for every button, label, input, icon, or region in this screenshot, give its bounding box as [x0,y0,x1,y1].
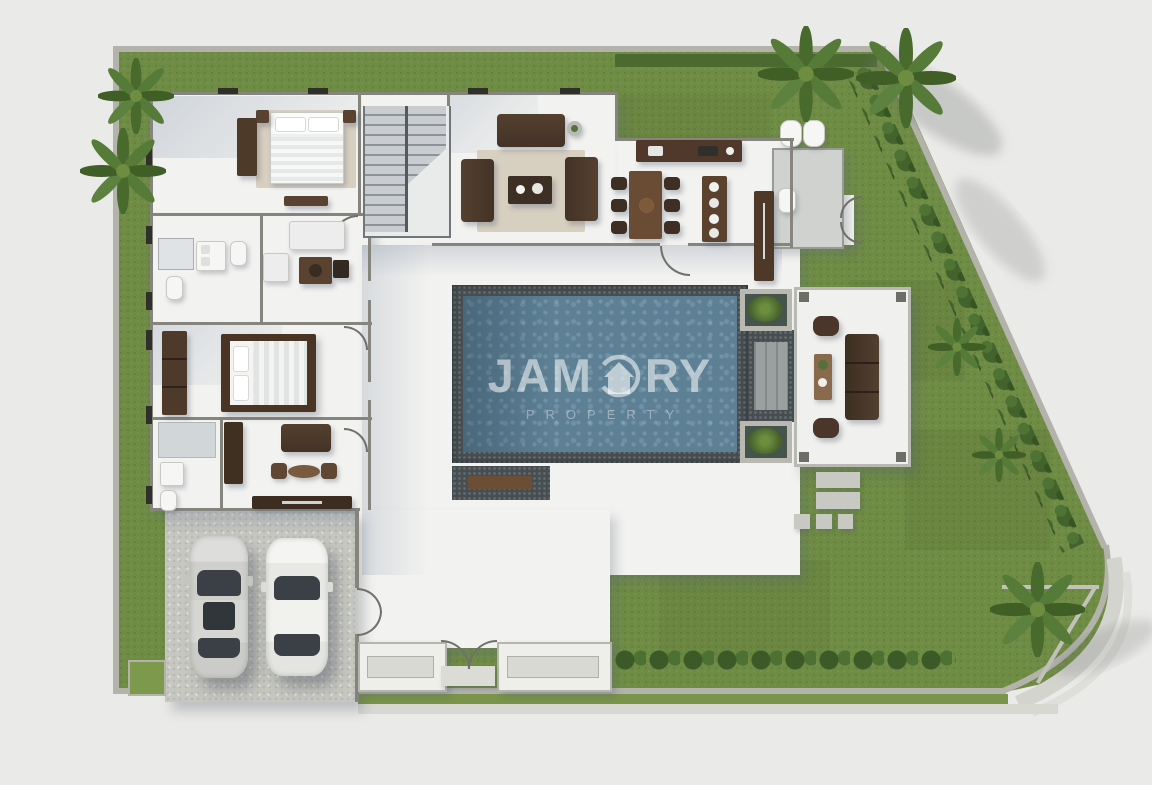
stepping-stone [816,492,860,509]
desk [299,257,332,284]
side-table [567,121,582,136]
sink [648,146,663,156]
house-layer [0,0,1152,785]
wardrobe [237,118,257,176]
study-sofa [289,221,345,250]
island-buffet [702,176,727,242]
wall [152,417,372,420]
car-mirror [247,576,253,586]
tv-console [252,496,352,509]
dish [818,378,827,387]
car-silver [190,536,248,678]
pavilion-post [896,292,906,302]
basin [201,245,210,254]
cushion-seam [845,391,879,393]
car-windshield [197,570,241,596]
outdoor-bench [468,476,532,489]
dining-chair [611,221,627,234]
counter-handle [763,203,765,259]
wall [790,138,793,248]
sofa-top [497,114,565,147]
plant [571,125,578,132]
wall [152,322,372,325]
planter-plant [748,296,782,322]
pool-steps [748,330,794,422]
toilet [166,276,183,300]
stepping-stone [794,514,810,529]
stair-railing [405,106,408,232]
window [146,148,152,168]
stepping-stone [838,514,853,529]
window [308,88,328,94]
garden-hedge-row [612,646,956,674]
cushion-seam [845,362,879,364]
cooktop [698,146,718,156]
wardrobe-divider [162,358,187,360]
toilet [778,188,796,213]
oval-table [288,465,320,478]
wardrobe-divider [162,386,187,388]
window [218,88,238,94]
pillow [308,117,339,132]
kitchen-counter [636,140,742,162]
entry-step [441,666,495,686]
carport-fence [355,510,359,588]
duvet [254,341,307,405]
villa-floorplan-screenshot: JAM RY PROPERTY [0,0,1152,785]
dining-chair [664,177,680,190]
bench-pad [452,466,550,500]
planter-plant [748,428,782,454]
water-heater [803,120,825,147]
sofa-left [461,159,494,222]
basin [201,257,210,266]
car-white [266,538,328,676]
wall [615,92,618,141]
pool-step-treads [754,342,788,410]
planter-inset [367,656,434,678]
car-rear-window [198,638,240,658]
tv [282,501,322,504]
pavilion-post [896,452,906,462]
master-bed-frame [221,334,316,412]
stepping-stone [816,514,832,529]
nightstand [343,110,356,123]
corner-planter [128,660,166,696]
window [146,406,152,424]
car-rear-window [274,634,320,656]
pillow [233,375,249,401]
wall [368,400,371,510]
bowl [726,147,734,155]
bed-double [270,112,344,184]
pavilion-deck [794,287,911,467]
plate [709,182,719,192]
sofa-right [565,157,598,221]
duvet [271,137,343,183]
master-bedding [230,341,307,405]
pillow [233,346,249,372]
console-table [284,196,328,206]
window [146,330,152,350]
plate [709,198,719,208]
pavilion-armchair [813,418,839,438]
plate [709,214,719,224]
master-wardrobe [162,331,187,415]
pool-water [463,296,737,452]
pool-surround [452,285,748,463]
dining-chair [664,221,680,234]
window [560,88,580,94]
coffee-table [508,176,552,204]
pavilion-armchair [813,316,839,336]
dining-chair [611,199,627,212]
planter-inset [507,656,599,678]
stair-flight [408,106,446,184]
car-windshield [274,576,320,600]
car-mirror [261,582,267,592]
window [146,486,152,504]
wall [368,300,371,382]
plant [818,360,828,370]
stepping-stone [816,472,860,488]
shower2 [158,422,216,458]
dish [516,185,525,194]
sink [160,462,184,486]
wall [220,420,223,510]
pantry-counter [754,191,774,281]
toilet [230,241,247,266]
stool [321,463,337,479]
pavilion-table [814,354,832,400]
window [146,292,152,310]
sink-counter [196,241,226,271]
stair-flight [365,106,405,232]
car-mirror [327,582,333,592]
wall [358,92,361,213]
plate [709,228,719,238]
shower-tray [158,238,194,270]
staircase [363,106,451,238]
stool [271,463,287,479]
car-sunroof [203,602,235,630]
pavilion-post [799,292,809,302]
dining-chair [611,177,627,190]
car-mirror [185,576,191,586]
desk-chair [309,264,322,277]
window [146,226,152,244]
centerpiece [639,198,654,213]
window [468,88,488,94]
dining-table [629,171,662,239]
nightstand [256,110,269,123]
pavilion-post [799,452,809,462]
toilet [160,490,177,511]
study-armchair [263,253,289,282]
side-cabinet [333,260,349,278]
dining-chair [664,199,680,212]
pillow [275,117,306,132]
tv-sofa [281,424,331,452]
pool-planter [740,289,792,331]
entry-planter-wall-left [358,642,447,692]
wall [432,243,660,246]
tv-wardrobe [224,422,243,484]
wall [688,243,792,246]
pool-planter [740,421,792,463]
entry-planter-wall-right [497,642,612,692]
south-terrace-floor [357,510,610,648]
dish [532,183,543,194]
